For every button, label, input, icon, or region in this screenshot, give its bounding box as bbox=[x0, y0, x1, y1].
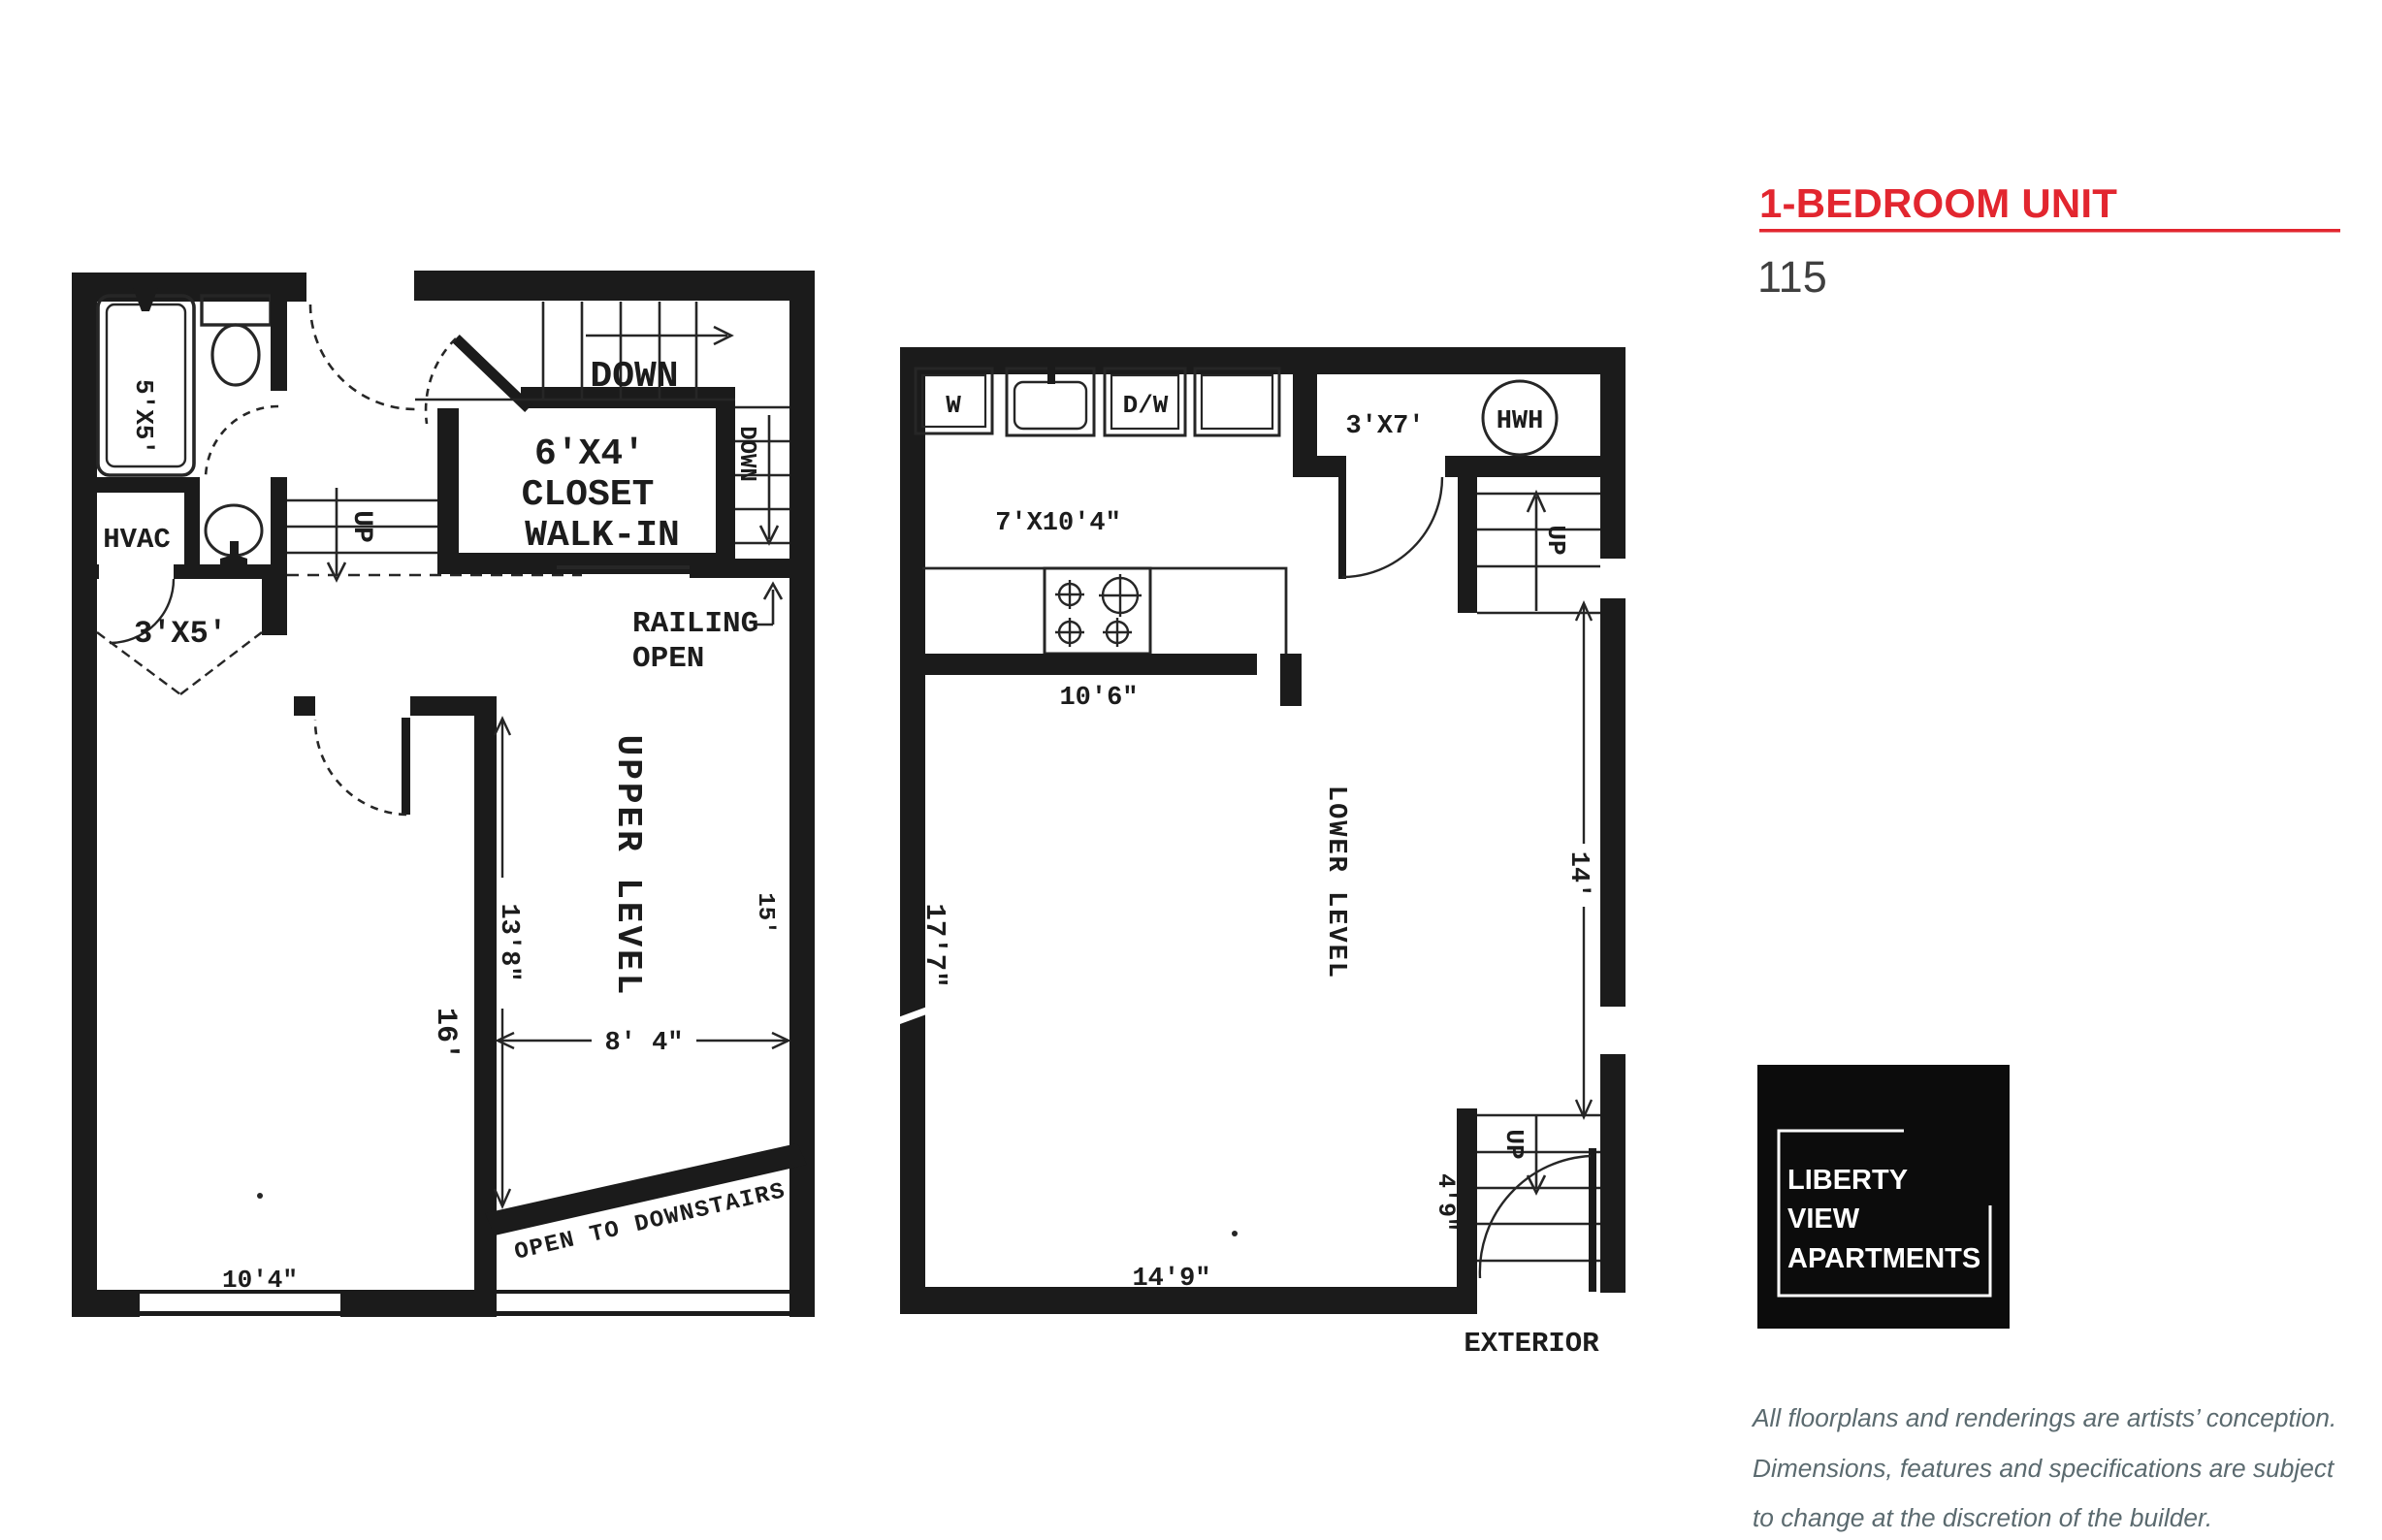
svg-text:RAILING: RAILING bbox=[632, 607, 758, 641]
svg-text:14': 14' bbox=[1563, 851, 1593, 899]
svg-text:All floorplans and renderings: All floorplans and renderings are artist… bbox=[1751, 1403, 2336, 1432]
svg-text:UP: UP bbox=[1499, 1129, 1529, 1159]
svg-text:UPPER LEVEL: UPPER LEVEL bbox=[608, 735, 648, 998]
svg-text:VIEW: VIEW bbox=[1787, 1203, 1860, 1235]
svg-text:5'X5': 5'X5' bbox=[129, 379, 158, 455]
svg-text:DOWN: DOWN bbox=[733, 426, 759, 482]
svg-text:14'9": 14'9" bbox=[1132, 1265, 1210, 1294]
svg-text:13'8": 13'8" bbox=[494, 903, 523, 981]
svg-text:D/W: D/W bbox=[1123, 391, 1169, 420]
svg-text:W: W bbox=[946, 391, 961, 420]
svg-text:6'X4': 6'X4' bbox=[534, 433, 645, 475]
svg-text:115: 115 bbox=[1757, 252, 1827, 302]
svg-text:to change at the discretion of: to change at the discretion of the build… bbox=[1753, 1503, 2212, 1532]
svg-text:3'X5': 3'X5' bbox=[134, 616, 227, 652]
svg-text:1-BEDROOM UNIT: 1-BEDROOM UNIT bbox=[1759, 180, 2117, 226]
svg-text:DOWN: DOWN bbox=[590, 356, 678, 398]
svg-text:7'X10'4": 7'X10'4" bbox=[995, 509, 1121, 538]
svg-text:17'7": 17'7" bbox=[918, 903, 950, 987]
svg-text:LOWER LEVEL: LOWER LEVEL bbox=[1321, 786, 1350, 979]
svg-text:4'9": 4'9" bbox=[1432, 1173, 1460, 1232]
svg-text:10'4": 10'4" bbox=[222, 1266, 298, 1295]
svg-text:OPEN: OPEN bbox=[632, 642, 704, 676]
svg-text:HVAC: HVAC bbox=[103, 524, 171, 556]
svg-text:WALK-IN: WALK-IN bbox=[525, 515, 680, 557]
svg-text:LIBERTY: LIBERTY bbox=[1787, 1165, 1908, 1196]
svg-text:10'6": 10'6" bbox=[1059, 684, 1138, 713]
svg-text:CLOSET: CLOSET bbox=[522, 474, 655, 516]
svg-text:UP: UP bbox=[1541, 525, 1570, 555]
svg-text:HWH: HWH bbox=[1497, 407, 1544, 436]
svg-text:3'X7': 3'X7' bbox=[1345, 412, 1424, 441]
svg-text:16': 16' bbox=[429, 1008, 462, 1060]
svg-text:EXTERIOR: EXTERIOR bbox=[1464, 1328, 1599, 1360]
svg-text:APARTMENTS: APARTMENTS bbox=[1787, 1243, 1980, 1274]
svg-text:15': 15' bbox=[752, 892, 778, 934]
svg-text:UP: UP bbox=[346, 510, 376, 543]
svg-text:8' 4": 8' 4" bbox=[604, 1029, 683, 1058]
svg-text:Dimensions, features and speci: Dimensions, features and specifications … bbox=[1753, 1454, 2335, 1483]
